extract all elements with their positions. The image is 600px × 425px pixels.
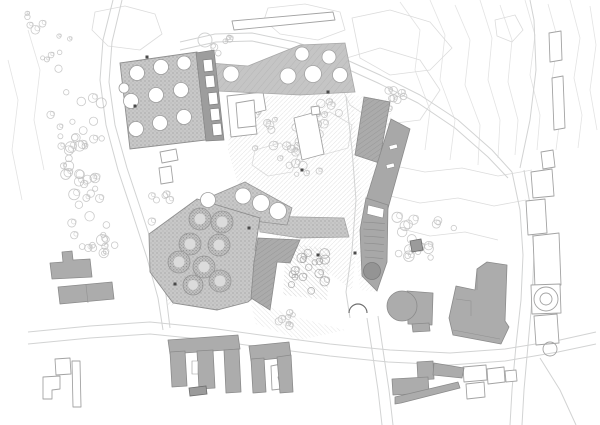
tree	[25, 14, 30, 19]
outline-building	[236, 100, 256, 128]
contour-line	[28, 30, 44, 170]
building-footprint	[197, 350, 215, 389]
bar-tip-circle	[364, 263, 381, 280]
band-tree-opening	[322, 50, 336, 64]
tree-court-center	[217, 217, 228, 228]
outline-building	[526, 199, 547, 235]
tree-court-center	[215, 276, 226, 287]
contour-line	[500, 5, 518, 155]
tree	[75, 201, 82, 208]
tree	[395, 250, 402, 257]
tree-court-center	[185, 239, 196, 250]
building-notch	[192, 361, 198, 374]
bridge-arc	[349, 304, 367, 313]
block-tree-opening	[130, 66, 145, 81]
tree	[71, 134, 78, 141]
block-tree-opening	[119, 83, 129, 93]
building-footprint	[433, 363, 464, 378]
band-cell	[210, 108, 220, 121]
contour-line	[570, 0, 582, 148]
outline-building	[43, 376, 60, 399]
outline-building	[160, 149, 178, 163]
outline-building	[463, 365, 487, 382]
marker-dot	[248, 227, 251, 230]
tree-court-center	[199, 262, 210, 273]
tree	[58, 134, 63, 139]
building-footprint	[224, 349, 241, 393]
marker-dot	[146, 56, 149, 59]
marker-dot	[317, 254, 320, 257]
block-tree-opening	[153, 116, 168, 131]
field-outline	[398, 228, 498, 240]
outline-building	[72, 361, 81, 407]
site-plan-image	[0, 0, 600, 425]
tree	[77, 97, 86, 106]
outline-building	[159, 166, 173, 184]
outline-building	[505, 370, 517, 382]
building-footprint	[50, 251, 92, 279]
outline-building	[232, 12, 335, 30]
road	[100, 0, 163, 330]
white-court	[201, 193, 216, 208]
tree-court-center	[214, 240, 225, 251]
outline-building	[487, 367, 505, 384]
outline-building	[466, 382, 485, 399]
tree	[215, 50, 221, 56]
outline-building	[533, 233, 561, 288]
tree	[96, 98, 106, 108]
marker-dot	[354, 252, 357, 255]
band-tree-opening	[333, 68, 348, 83]
block-tree-opening	[154, 60, 169, 75]
outline-building	[311, 106, 320, 115]
building-footprint	[449, 262, 509, 344]
band-cell	[205, 75, 215, 88]
block-tree-opening	[177, 110, 192, 125]
outline-building	[534, 314, 559, 345]
building-footprint	[412, 323, 430, 332]
field-outline	[386, 195, 526, 206]
tree	[57, 50, 62, 55]
outline-building	[541, 150, 555, 169]
road	[540, 358, 576, 425]
tree	[89, 117, 97, 125]
building-footprint	[170, 351, 187, 387]
outline-building	[531, 284, 561, 314]
white-court	[270, 203, 287, 220]
band-cell	[203, 59, 213, 72]
tree	[55, 65, 62, 72]
tree	[70, 119, 75, 124]
tree	[103, 236, 110, 243]
tree	[79, 244, 85, 250]
band-tree-opening	[223, 66, 239, 82]
road	[510, 172, 523, 425]
marker-dot	[301, 169, 304, 172]
tree	[61, 169, 71, 179]
block-tree-opening	[149, 88, 164, 103]
tree	[451, 225, 456, 230]
tree-court-center	[188, 280, 198, 290]
layer-stipple-block	[119, 50, 224, 149]
band-cell	[212, 123, 222, 136]
tree	[103, 222, 110, 229]
layer-upper-band	[197, 43, 355, 95]
field-outline	[352, 10, 452, 75]
tree-court-center	[195, 214, 206, 225]
contour-line	[8, 60, 22, 200]
tree	[428, 255, 433, 260]
round-hall	[387, 291, 417, 321]
tree	[79, 127, 87, 135]
contour-line	[525, 0, 540, 150]
tree	[64, 90, 69, 95]
site-plan-svg	[0, 0, 600, 425]
tree	[111, 242, 118, 249]
block-tree-opening	[177, 56, 191, 70]
contour-line	[480, 0, 500, 158]
contour-line	[455, 5, 480, 165]
road	[520, 0, 536, 168]
outline-building	[549, 31, 562, 62]
block-tree-opening	[129, 122, 144, 137]
marker-dot	[327, 91, 330, 94]
white-court	[235, 188, 251, 204]
band-tree-opening	[305, 66, 322, 83]
building-footprint	[277, 355, 293, 393]
tree	[41, 56, 45, 60]
band-cell	[208, 92, 218, 105]
band-tree-opening	[280, 68, 296, 84]
tree	[93, 186, 98, 191]
road	[28, 334, 596, 365]
marker-dot	[134, 105, 137, 108]
outline-building	[531, 169, 554, 198]
block-tree-opening	[174, 83, 189, 98]
outline-building	[552, 76, 565, 130]
outline-building	[55, 358, 71, 375]
contour-line	[590, 6, 597, 130]
dark-building	[410, 239, 423, 252]
tree	[85, 212, 94, 221]
white-court	[253, 195, 270, 212]
road	[367, 318, 382, 425]
tree	[153, 197, 159, 203]
tree-court-center	[174, 257, 185, 268]
dark-building	[189, 386, 207, 396]
band-tree-opening	[295, 47, 309, 61]
building-footprint	[251, 358, 266, 393]
tree	[400, 221, 410, 231]
marker-dot	[174, 283, 177, 286]
tree	[99, 136, 104, 141]
field-outline	[495, 15, 523, 42]
